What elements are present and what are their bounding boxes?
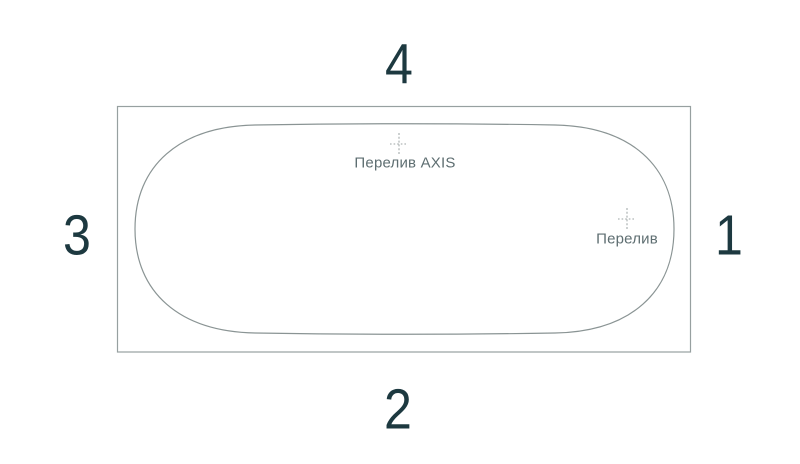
outer-rim-outline: [118, 107, 691, 353]
side-number-bottom: 2: [384, 382, 412, 439]
center-mark-icon: [618, 208, 636, 230]
bathtub-top-view-drawing: 4 2 3 1 Перелив AXIS Перелив: [0, 0, 800, 464]
overflow-axis-label: Перелив AXIS: [354, 155, 455, 172]
overflow-label: Перелив: [596, 231, 658, 248]
side-number-top: 4: [385, 37, 413, 94]
center-mark-icon: [390, 133, 408, 155]
side-number-right: 1: [715, 208, 743, 265]
side-number-left: 3: [63, 208, 91, 265]
